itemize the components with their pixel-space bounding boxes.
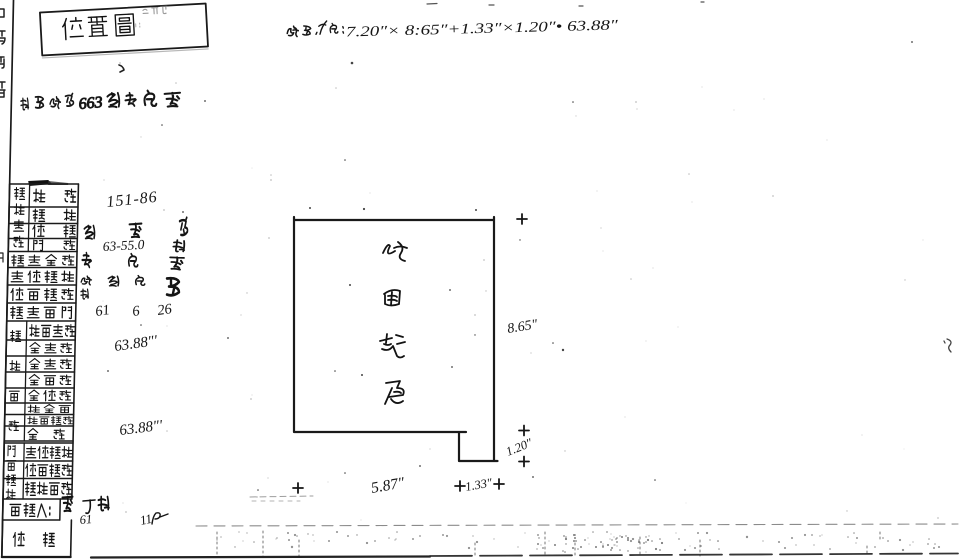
- svg-text:151-86: 151-86: [106, 189, 159, 211]
- svg-text:5.87″: 5.87″: [370, 474, 407, 497]
- svg-text:11: 11: [139, 511, 154, 528]
- svg-text:7.20″× 8:65″+1.33″×1.20″• 63.8: 7.20″× 8:65″+1.33″×1.20″• 63.88″: [346, 17, 620, 40]
- svg-text:63-55.0: 63-55.0: [102, 237, 145, 254]
- svg-text:63.88″′: 63.88″′: [119, 418, 165, 439]
- svg-text:26: 26: [156, 301, 173, 319]
- svg-text:8.65″: 8.65″: [506, 317, 538, 337]
- svg-text:1.33″: 1.33″: [464, 475, 494, 494]
- svg-text:63.88″′: 63.88″′: [113, 333, 159, 355]
- svg-text:61: 61: [94, 302, 111, 320]
- svg-text:61: 61: [79, 512, 93, 527]
- svg-text:663: 663: [78, 94, 103, 113]
- svg-text:6: 6: [131, 303, 141, 320]
- svg-text:1.20″: 1.20″: [504, 435, 535, 458]
